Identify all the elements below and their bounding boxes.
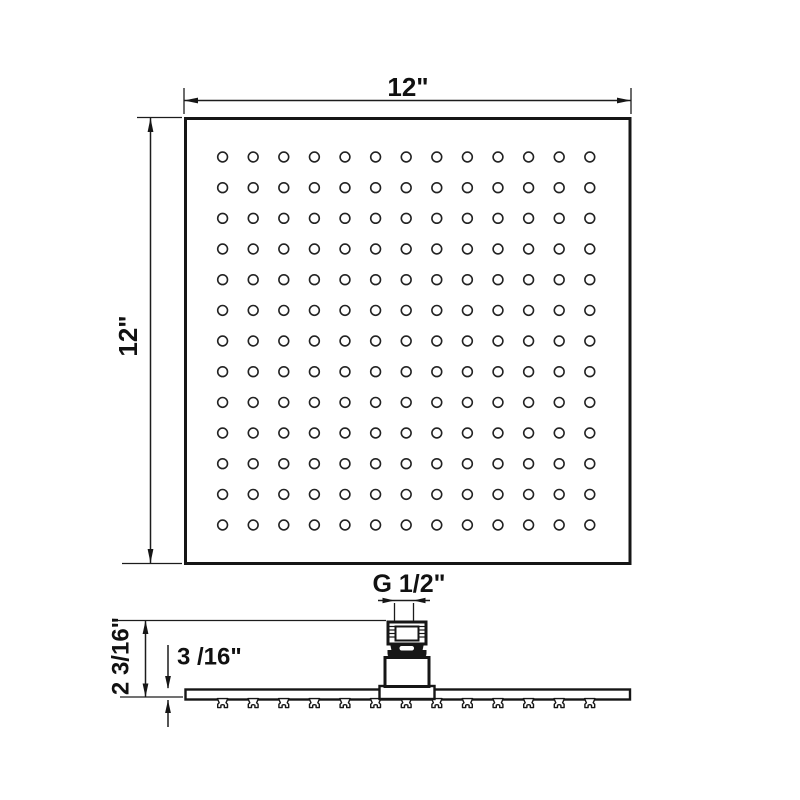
nozzle-hole [310, 336, 320, 346]
nozzle-hole [279, 398, 289, 408]
nozzle-hole [493, 152, 503, 162]
nozzle-hole [310, 213, 320, 223]
nozzle-hole [585, 459, 595, 469]
nozzle-hole [401, 213, 411, 223]
nozzle-tip [493, 699, 503, 708]
nozzle-hole [218, 306, 228, 316]
nozzle-hole [371, 183, 381, 193]
arrowhead-up [148, 118, 154, 132]
nozzle-hole [248, 367, 258, 377]
nozzle-hole [554, 520, 564, 530]
collar-highlight [399, 646, 415, 652]
nozzle-hole [493, 183, 503, 193]
plate-thickness-label: 3 /16" [177, 644, 242, 671]
nozzle-hole [340, 152, 350, 162]
nozzle-hole [371, 306, 381, 316]
nozzle-tip [585, 699, 595, 708]
nozzle-hole [554, 367, 564, 377]
arrowhead-down [148, 549, 154, 563]
nozzle-hole [585, 398, 595, 408]
nozzle-hole [554, 213, 564, 223]
nozzle-hole [585, 213, 595, 223]
nozzle-hole [585, 152, 595, 162]
nozzle-hole [493, 213, 503, 223]
nozzle-hole [585, 244, 595, 254]
arrowhead-left [184, 98, 198, 104]
nozzle-hole [554, 336, 564, 346]
nozzle-hole [279, 152, 289, 162]
nozzle-hole [401, 336, 411, 346]
nozzle-hole [218, 183, 228, 193]
top-width-label: 12" [387, 72, 428, 102]
nozzle-hole [524, 306, 534, 316]
nozzle-hole [279, 183, 289, 193]
nozzle-hole [371, 336, 381, 346]
nozzle-hole [463, 213, 473, 223]
nozzle-hole [401, 398, 411, 408]
nozzle-tip [217, 699, 227, 708]
nozzle-hole [279, 428, 289, 438]
overall-height-label: 2 3/16" [108, 617, 135, 695]
plate-thickness-dimension: 3 /16" [165, 644, 242, 728]
nozzle-tip [340, 699, 350, 708]
nozzle-hole [218, 520, 228, 530]
nozzle-hole [554, 428, 564, 438]
nozzle-hole [218, 244, 228, 254]
nozzle-hole [310, 275, 320, 285]
nozzle-hole [279, 520, 289, 530]
nozzle-hole [493, 244, 503, 254]
nozzle-hole [554, 459, 564, 469]
arrowhead-up [143, 621, 149, 635]
shower-head-drawing: 12" 12" [0, 0, 800, 800]
thread-size-label: G 1/2" [373, 570, 446, 598]
nozzle-hole [554, 398, 564, 408]
nozzle-hole [432, 183, 442, 193]
nozzle-hole [432, 336, 442, 346]
nozzle-hole [248, 490, 258, 500]
arrowhead-down [143, 684, 149, 698]
nozzle-hole [432, 213, 442, 223]
nozzle-hole [493, 275, 503, 285]
nozzle-hole [371, 459, 381, 469]
nozzle-tip [554, 699, 564, 708]
arrowhead-up [165, 700, 171, 713]
nozzle-hole [432, 152, 442, 162]
nozzle-hole [279, 244, 289, 254]
nozzle-hole [524, 183, 534, 193]
nozzle-hole [432, 244, 442, 254]
nozzle-tip [248, 699, 258, 708]
nozzle-hole [340, 275, 350, 285]
nozzle-hole [248, 183, 258, 193]
left-height-dimension: 12" [113, 118, 182, 564]
nozzle-hole [310, 183, 320, 193]
nozzle-hole [401, 428, 411, 438]
nozzle-tip [279, 699, 289, 708]
nozzle-hole [401, 520, 411, 530]
nozzle-hole [463, 183, 473, 193]
nozzle-hole [432, 459, 442, 469]
nozzle-hole [248, 306, 258, 316]
nozzle-hole [218, 275, 228, 285]
nozzle-hole [248, 428, 258, 438]
nozzle-hole [493, 490, 503, 500]
nozzle-hole [463, 152, 473, 162]
nozzle-hole [371, 428, 381, 438]
nozzle-hole [248, 520, 258, 530]
nozzle-hole [310, 152, 320, 162]
nozzle-hole [432, 367, 442, 377]
nozzle-hole [554, 490, 564, 500]
nozzle-hole [524, 428, 534, 438]
nozzle-hole [310, 459, 320, 469]
overall-height-dimension: 2 3/16" [108, 617, 387, 697]
nozzle-hole [310, 398, 320, 408]
nozzle-hole [524, 398, 534, 408]
nozzle-hole [279, 336, 289, 346]
nozzle-hole [554, 183, 564, 193]
dimension-drawing-canvas: 12" 12" [0, 0, 800, 800]
nozzle-hole [493, 459, 503, 469]
nozzle-tip [523, 699, 533, 708]
thread-dimension: G 1/2" [373, 570, 446, 621]
connector-assembly [380, 622, 435, 699]
nozzle-hole [279, 367, 289, 377]
nozzle-hole [340, 183, 350, 193]
nozzle-hole [432, 428, 442, 438]
nozzle-hole [524, 490, 534, 500]
nozzle-hole [218, 152, 228, 162]
nozzle-hole [401, 275, 411, 285]
nozzle-hole [340, 306, 350, 316]
arrowhead-right [383, 598, 395, 604]
nozzle-hole [248, 152, 258, 162]
nozzle-hole [401, 244, 411, 254]
nozzle-hole [218, 367, 228, 377]
nozzle-hole [340, 213, 350, 223]
nozzle-hole [524, 275, 534, 285]
nozzle-hole [585, 520, 595, 530]
nozzle-hole [401, 152, 411, 162]
nozzle-hole [554, 244, 564, 254]
nozzle-hole [463, 336, 473, 346]
nozzle-hole [401, 459, 411, 469]
nozzle-hole [524, 459, 534, 469]
nozzle-hole [493, 428, 503, 438]
nozzle-hole [218, 490, 228, 500]
nozzle-hole [463, 490, 473, 500]
nozzle-hole [432, 398, 442, 408]
nozzle-hole [340, 520, 350, 530]
nozzle-hole [310, 520, 320, 530]
nozzle-hole [493, 520, 503, 530]
nozzle-hole [340, 428, 350, 438]
nozzle-hole [248, 213, 258, 223]
nozzle-hole [585, 275, 595, 285]
arrowhead-down [165, 676, 171, 689]
nozzle-hole [463, 306, 473, 316]
nozzle-hole [493, 306, 503, 316]
nozzle-hole [524, 213, 534, 223]
nozzle-hole [493, 336, 503, 346]
nozzle-hole [279, 490, 289, 500]
nozzle-hole [585, 428, 595, 438]
nozzle-hole [248, 275, 258, 285]
nozzle-hole [401, 490, 411, 500]
nozzle-hole [524, 520, 534, 530]
nozzle-hole [371, 275, 381, 285]
nozzle-hole [585, 306, 595, 316]
nozzle-hole [279, 306, 289, 316]
nozzle-hole [371, 367, 381, 377]
connector-body [385, 658, 429, 687]
nozzle-hole [585, 336, 595, 346]
nozzle-hole [371, 213, 381, 223]
nozzle-hole [463, 520, 473, 530]
thread-opening [396, 627, 419, 641]
nozzle-hole [340, 244, 350, 254]
nozzle-hole [340, 459, 350, 469]
nozzle-hole [432, 275, 442, 285]
side-view: G 1/2" 2 3/16" 3 /16" [108, 570, 631, 727]
nozzle-hole [585, 183, 595, 193]
nozzle-hole [371, 398, 381, 408]
nozzle-hole [432, 306, 442, 316]
nozzle-hole [248, 459, 258, 469]
arrowhead-right [617, 98, 631, 104]
nozzle-hole [401, 306, 411, 316]
top-view [186, 119, 631, 564]
nozzle-tip [309, 699, 319, 708]
left-height-label: 12" [113, 315, 143, 356]
nozzle-hole [524, 244, 534, 254]
nozzle-hole [401, 367, 411, 377]
nozzle-hole [310, 428, 320, 438]
nozzle-hole [463, 428, 473, 438]
nozzle-hole [310, 306, 320, 316]
nozzle-hole [524, 152, 534, 162]
nozzle-hole [310, 490, 320, 500]
nozzle-hole [554, 306, 564, 316]
nozzle-hole [371, 244, 381, 254]
nozzle-hole [218, 459, 228, 469]
nozzle-hole [585, 367, 595, 377]
nozzle-hole [340, 490, 350, 500]
nozzle-hole [248, 336, 258, 346]
nozzle-hole [554, 275, 564, 285]
nozzle-hole [463, 459, 473, 469]
nozzle-hole [493, 367, 503, 377]
nozzle-tip [462, 699, 472, 708]
nozzle-hole [401, 183, 411, 193]
nozzle-hole [310, 244, 320, 254]
nozzle-hole [218, 428, 228, 438]
top-width-dimension: 12" [184, 72, 631, 114]
nozzle-hole [340, 336, 350, 346]
nozzle-hole [493, 398, 503, 408]
nozzle-hole [463, 244, 473, 254]
nozzle-hole [371, 490, 381, 500]
nozzle-hole [248, 398, 258, 408]
nozzle-hole [463, 275, 473, 285]
nozzle-hole [218, 398, 228, 408]
nozzle-hole [463, 398, 473, 408]
nozzle-hole [248, 244, 258, 254]
nozzle-hole [279, 275, 289, 285]
nozzle-hole [585, 490, 595, 500]
nozzle-hole [279, 213, 289, 223]
nozzle-hole [371, 520, 381, 530]
nozzle-hole [554, 152, 564, 162]
nozzle-hole [432, 490, 442, 500]
nozzle-hole [340, 367, 350, 377]
nozzle-hole [340, 398, 350, 408]
nozzle-hole [218, 336, 228, 346]
nozzle-hole [218, 213, 228, 223]
arrowhead-left [414, 598, 426, 604]
nozzle-hole [279, 459, 289, 469]
nozzle-hole [310, 367, 320, 377]
nozzle-hole [463, 367, 473, 377]
nozzle-hole [371, 152, 381, 162]
nozzle-hole [524, 336, 534, 346]
nozzle-hole [432, 520, 442, 530]
nozzle-hole [524, 367, 534, 377]
